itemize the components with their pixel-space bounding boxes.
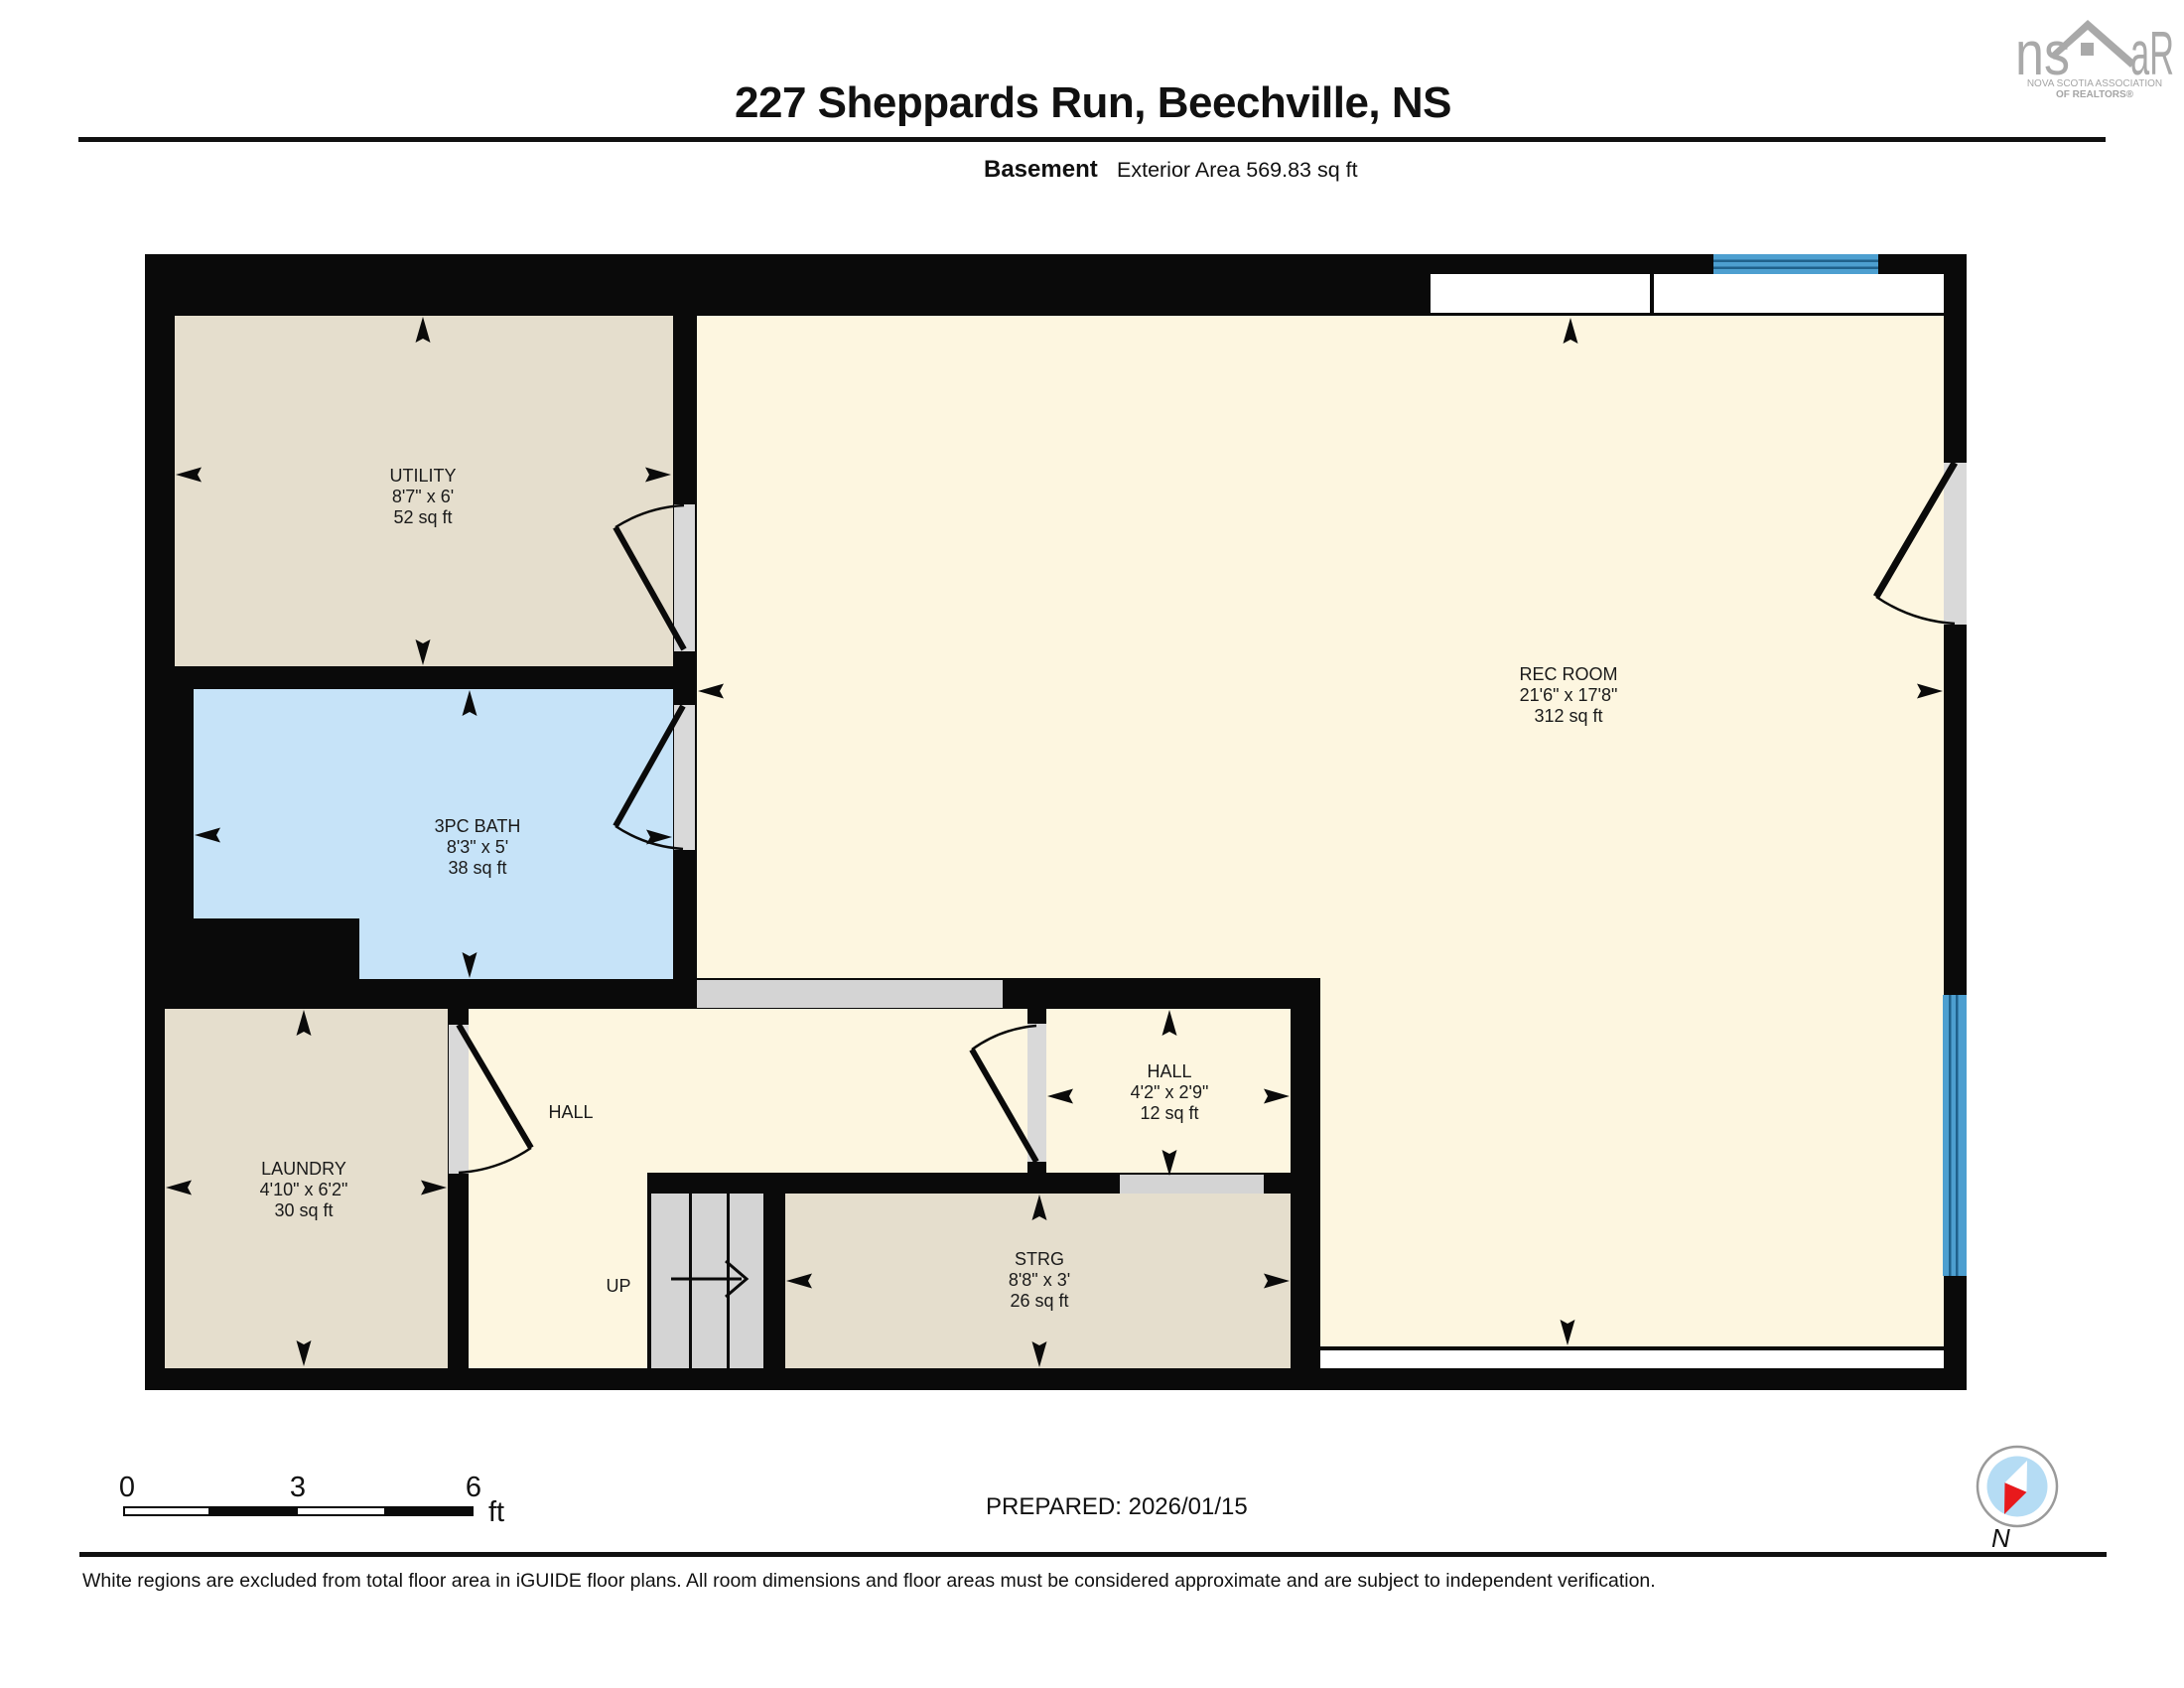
svg-text:Basement: Basement bbox=[984, 156, 1098, 183]
svg-text:REC ROOM: REC ROOM bbox=[1520, 664, 1618, 684]
svg-text:UTILITY: UTILITY bbox=[389, 466, 456, 486]
svg-text:312 sq ft: 312 sq ft bbox=[1534, 706, 1602, 726]
svg-text:STRG: STRG bbox=[1015, 1249, 1064, 1269]
svg-text:8'8" x 3': 8'8" x 3' bbox=[1009, 1270, 1070, 1290]
svg-text:12 sq ft: 12 sq ft bbox=[1140, 1103, 1198, 1123]
svg-text:White regions are excluded fro: White regions are excluded from total fl… bbox=[82, 1570, 1656, 1592]
svg-text:Exterior Area 569.83 sq ft: Exterior Area 569.83 sq ft bbox=[1117, 158, 1358, 182]
svg-text:26 sq ft: 26 sq ft bbox=[1010, 1291, 1068, 1311]
svg-text:52 sq ft: 52 sq ft bbox=[393, 507, 452, 527]
svg-text:OF REALTORS®: OF REALTORS® bbox=[2056, 89, 2134, 100]
svg-text:3: 3 bbox=[290, 1472, 306, 1503]
svg-text:8'7" x 6': 8'7" x 6' bbox=[392, 487, 454, 506]
svg-text:38 sq ft: 38 sq ft bbox=[448, 858, 506, 878]
svg-text:PREPARED: 2026/01/15: PREPARED: 2026/01/15 bbox=[986, 1493, 1248, 1520]
svg-text:4'2" x 2'9": 4'2" x 2'9" bbox=[1131, 1082, 1209, 1102]
svg-text:ft: ft bbox=[488, 1496, 504, 1528]
svg-text:30 sq ft: 30 sq ft bbox=[274, 1200, 333, 1220]
svg-text:21'6" x 17'8": 21'6" x 17'8" bbox=[1520, 685, 1618, 705]
svg-text:227 Sheppards Run, Beechville,: 227 Sheppards Run, Beechville, NS bbox=[735, 78, 1451, 127]
svg-text:HALL: HALL bbox=[548, 1102, 593, 1122]
svg-text:N: N bbox=[1991, 1523, 2010, 1553]
svg-text:8'3" x 5': 8'3" x 5' bbox=[447, 837, 508, 857]
svg-text:LAUNDRY: LAUNDRY bbox=[261, 1159, 346, 1179]
svg-text:NOVA SCOTIA ASSOCIATION: NOVA SCOTIA ASSOCIATION bbox=[2027, 78, 2162, 89]
svg-text:UP: UP bbox=[606, 1276, 630, 1296]
svg-text:3PC BATH: 3PC BATH bbox=[435, 816, 521, 836]
svg-text:4'10" x 6'2": 4'10" x 6'2" bbox=[260, 1180, 348, 1199]
svg-text:0: 0 bbox=[119, 1472, 135, 1503]
svg-text:6: 6 bbox=[466, 1472, 481, 1503]
svg-text:HALL: HALL bbox=[1147, 1061, 1191, 1081]
